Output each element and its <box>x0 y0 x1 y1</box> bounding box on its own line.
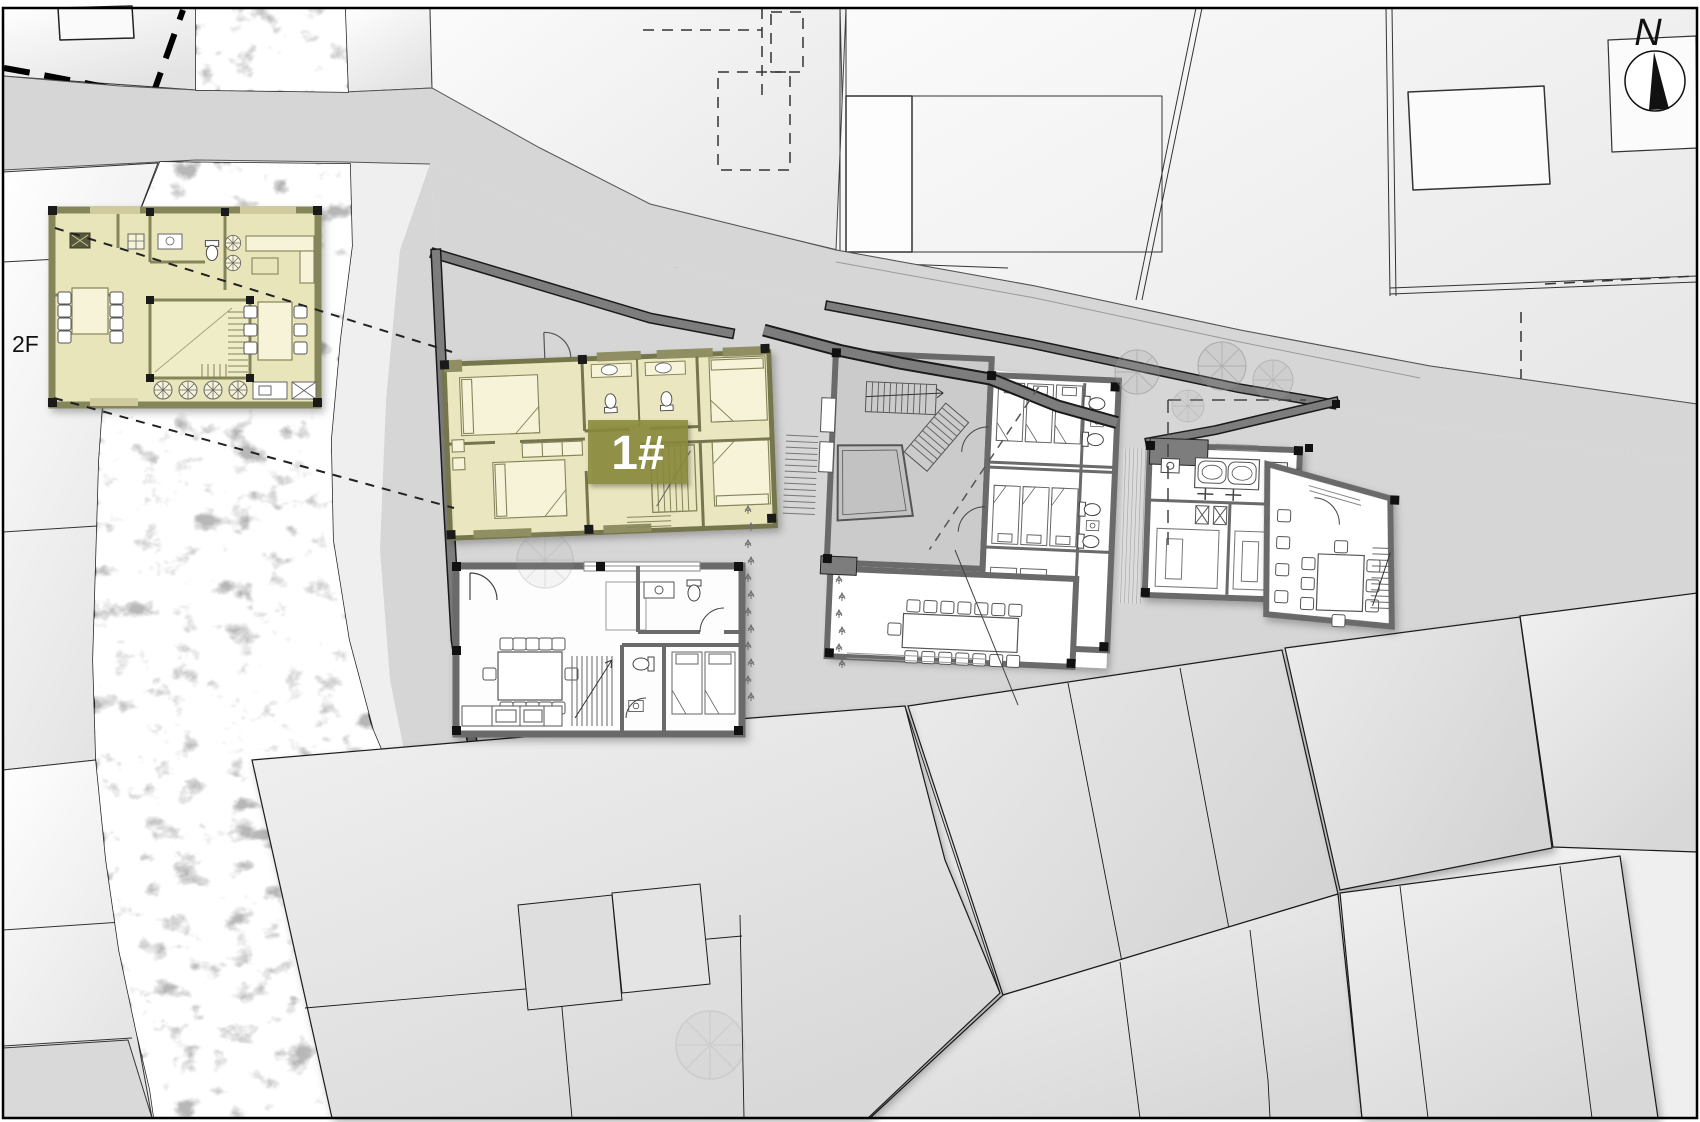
dorm-beds-2 <box>992 485 1078 547</box>
long-dining-table <box>902 613 1018 652</box>
building-b <box>452 562 743 735</box>
site-plan-canvas: 1# 2F <box>0 0 1700 1122</box>
north-label: N <box>1634 12 1662 54</box>
site-plan-page: 1# 2F <box>0 0 1700 1122</box>
stair-void-2f <box>150 300 250 378</box>
floor-plan-2f: 2F <box>12 206 322 407</box>
tilted-building-footprint <box>1408 86 1550 190</box>
building-1-label: 1# <box>611 427 664 480</box>
small-building-footprint <box>58 6 134 40</box>
dining-table-d <box>1316 554 1364 612</box>
floor-callout-label: 2F <box>12 331 39 357</box>
